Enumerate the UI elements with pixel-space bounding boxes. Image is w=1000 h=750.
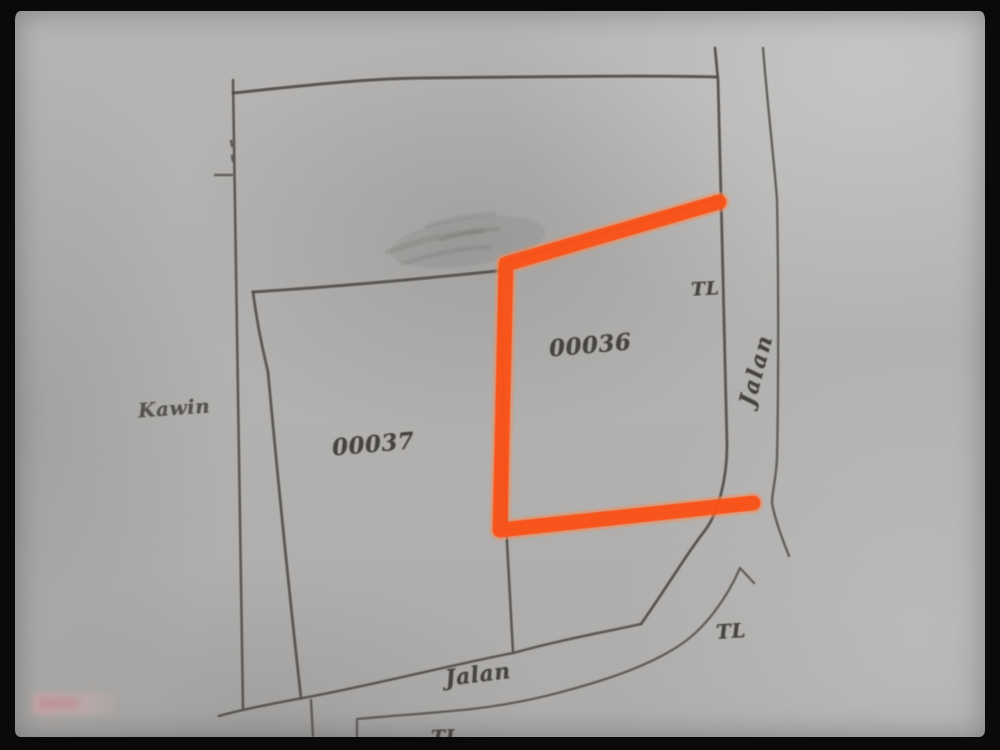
road-right-outer-edge <box>763 48 789 556</box>
boundary-left <box>233 80 243 708</box>
divider-below-highlight <box>507 541 513 652</box>
watermark-smudge <box>33 693 113 715</box>
scanned-map-photo: 00036 00037 Kawin Jalan Jalan TL TL TL <box>0 0 1000 750</box>
marker-tl-bottom-center: TL <box>431 726 460 749</box>
area-label-kawin: Kawin <box>137 394 211 423</box>
marker-tl-upper-right: TL <box>690 277 720 300</box>
boundary-top <box>233 76 716 93</box>
boundary-bottom-road-edge <box>219 624 641 716</box>
marker-tl-lower-right: TL <box>715 618 747 644</box>
parcel-00037-top <box>253 271 497 292</box>
parcel-00037-left <box>253 292 301 698</box>
road-bottom-lower-edge <box>357 568 754 737</box>
highlight-path <box>500 202 753 530</box>
boundary-right <box>641 48 727 624</box>
road-drop-line <box>311 700 313 736</box>
highlight-parcel-00036 <box>500 202 753 530</box>
parcel-drawing <box>0 0 1000 750</box>
